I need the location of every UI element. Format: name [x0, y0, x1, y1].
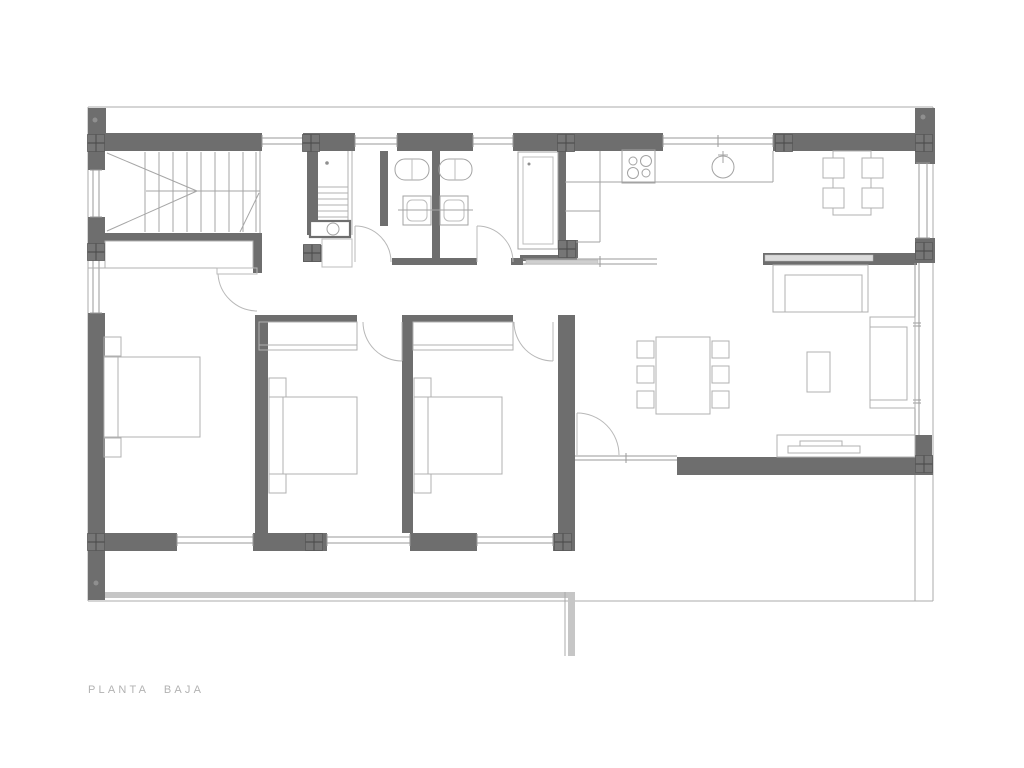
door-swing	[355, 226, 391, 262]
column-markers	[88, 135, 933, 551]
bed	[414, 397, 502, 474]
window	[473, 135, 513, 147]
kitchen-sink-icon	[712, 151, 734, 178]
vanity-sink-icon	[439, 159, 472, 180]
chair	[862, 188, 883, 208]
chair	[862, 158, 883, 178]
chair	[823, 158, 844, 178]
nightstand	[269, 474, 286, 493]
shower-icon	[518, 152, 558, 249]
door-swing	[514, 322, 553, 361]
utility-cabinet	[322, 239, 352, 267]
door-swing	[477, 226, 513, 262]
sofa	[773, 265, 868, 312]
bedroom-1	[104, 337, 200, 457]
coffee-table	[807, 352, 830, 392]
hall-closet	[105, 241, 253, 268]
floor-plan: PLANTA BAJA	[0, 0, 1024, 768]
nightstand	[414, 378, 431, 397]
drain-dot	[325, 161, 329, 165]
chair	[712, 391, 729, 408]
window	[477, 534, 553, 546]
nightstand	[104, 438, 121, 457]
stove-icon	[622, 150, 655, 183]
bathroom-1	[355, 159, 436, 262]
wardrobe	[259, 322, 357, 350]
glass-wall	[913, 263, 921, 435]
bathroom-2	[436, 152, 558, 262]
door-swing	[217, 268, 257, 311]
window	[177, 534, 253, 546]
door-swing	[577, 413, 619, 455]
chair	[637, 366, 654, 383]
toilet-icon	[436, 196, 473, 225]
window	[355, 135, 397, 147]
terrace-sliding-door	[575, 453, 677, 463]
chair	[637, 391, 654, 408]
washing-machine-icon	[310, 221, 350, 237]
tv-unit	[777, 435, 915, 457]
sofa	[870, 317, 915, 408]
chair	[712, 366, 729, 383]
window	[327, 534, 410, 546]
chair	[712, 341, 729, 358]
nightstand	[414, 474, 431, 493]
plan-title: PLANTA BAJA	[88, 684, 204, 696]
tv-icon	[800, 441, 842, 446]
floor-plan-drawing	[0, 0, 1024, 768]
windows	[90, 135, 930, 546]
dining-table	[637, 337, 729, 414]
bed	[269, 397, 357, 474]
window	[916, 163, 930, 238]
bedroom-3	[413, 322, 553, 493]
kitchen	[565, 150, 773, 242]
breakfast-table	[823, 151, 883, 215]
door-swing	[363, 322, 402, 361]
vanity-sink-icon	[395, 159, 429, 180]
sideboard-ledge	[765, 255, 873, 261]
bed	[104, 357, 200, 437]
chair	[637, 341, 654, 358]
nightstand	[104, 337, 121, 356]
toilet-icon	[398, 196, 436, 225]
staircase	[107, 151, 260, 233]
window	[90, 170, 102, 217]
living-room	[577, 265, 915, 457]
nightstand	[269, 378, 286, 397]
terrace-slab	[103, 592, 575, 656]
window	[663, 135, 773, 147]
window	[262, 135, 303, 147]
bedroom-2	[259, 322, 402, 493]
wardrobe	[413, 322, 513, 350]
chair	[823, 188, 844, 208]
